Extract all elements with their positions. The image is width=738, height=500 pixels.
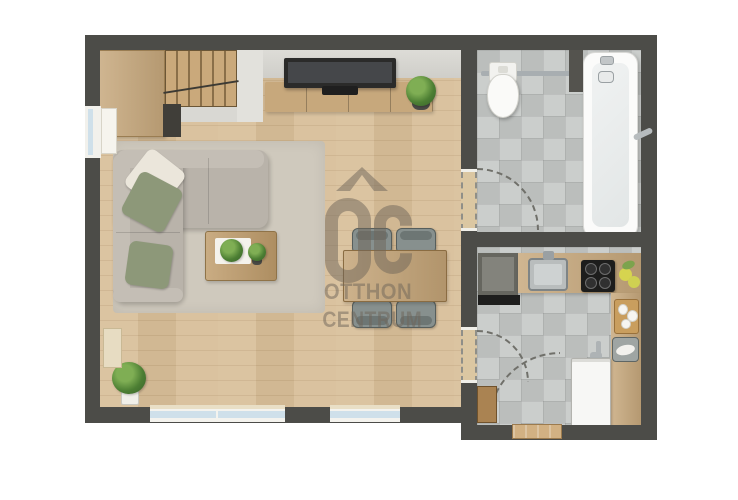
window-mullion (216, 410, 218, 419)
sofa-cushion-seam-1 (208, 158, 209, 224)
kitchen-sink (528, 258, 568, 291)
refrigerator-top (482, 257, 514, 291)
refrigerator (478, 253, 518, 297)
bathroom-door-jamb-bottom (461, 228, 477, 231)
entrance-threshold (512, 424, 562, 439)
bathtub-handle-2 (598, 71, 614, 83)
wall-top (85, 35, 657, 50)
stair-treads (165, 50, 237, 107)
window-bottom-2 (330, 405, 400, 422)
toilet-bowl (487, 74, 519, 118)
sofa-armrest-bottom (113, 288, 183, 302)
floor-plan: OTTHON CENTRUM (0, 0, 738, 500)
wall-divider-b (461, 230, 477, 330)
under-stair-closet (237, 50, 263, 122)
wall-shelf-panel (103, 328, 122, 368)
hall-cabinet (477, 386, 497, 423)
egg-3 (621, 319, 631, 329)
coffee-table-plant-1 (220, 239, 243, 262)
wall-left (85, 35, 100, 423)
bathtub-basin (592, 63, 629, 227)
fish-tray (612, 337, 639, 362)
dining-table (343, 250, 447, 302)
fish (615, 343, 636, 357)
coffee-table-plant-2 (248, 243, 266, 261)
stair-newel-post (163, 104, 181, 137)
tv (284, 58, 396, 88)
console-plant (406, 76, 436, 106)
wall-divider-a (461, 50, 477, 172)
kitchen-faucet (543, 251, 554, 260)
sofa-cushion-seam-2 (116, 232, 180, 233)
dining-chair-3 (352, 300, 392, 328)
burner-1 (585, 263, 597, 275)
lemon-2 (628, 276, 640, 288)
window-left-glass (88, 109, 93, 155)
wall-bath-kitchen (477, 232, 657, 247)
bathroom-door-opening (461, 172, 477, 230)
cooktop (581, 260, 615, 292)
burner-3 (585, 277, 597, 289)
under-stair-floor (181, 107, 237, 122)
bathroom-door-jamb-top (461, 169, 477, 172)
kitchen-door-opening (461, 330, 477, 382)
burner-2 (599, 263, 611, 275)
kitchen-door-jamb-top (461, 327, 477, 330)
tv-stand (322, 86, 358, 95)
kitchen-door-jamb-bottom (461, 380, 477, 383)
refrigerator-front (478, 295, 520, 305)
dining-chair-4 (396, 300, 436, 328)
cutting-board (614, 299, 639, 334)
wall-divider-c (461, 382, 477, 425)
window-left-sill (101, 108, 117, 154)
bath-shelf (569, 50, 583, 92)
pillow-green-2 (124, 240, 174, 290)
bathtub-handle-1 (600, 56, 614, 65)
toilet-flush-button (498, 66, 508, 73)
tv-screen (288, 62, 392, 83)
burner-4 (599, 277, 611, 289)
washing-machine (571, 358, 611, 428)
window-bottom-1 (150, 405, 285, 422)
prep-faucet-spout (596, 341, 601, 354)
kitchen-sink-basin (534, 264, 562, 285)
